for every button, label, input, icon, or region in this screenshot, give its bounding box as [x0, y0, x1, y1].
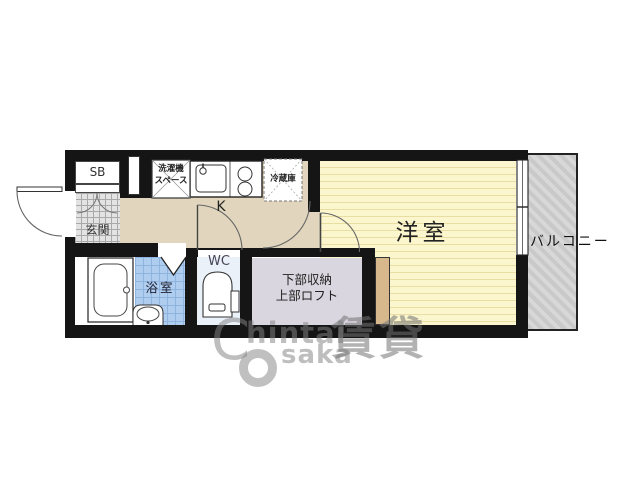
shoe-box-label: SB — [75, 165, 120, 179]
wall — [308, 150, 320, 212]
wall — [65, 243, 158, 257]
shoe-box-shelf — [75, 184, 120, 193]
pipe-space — [128, 156, 140, 195]
entrance-door-swing — [17, 187, 62, 236]
refrigerator-label: 冷蔵庫 — [264, 172, 302, 184]
wall — [65, 150, 75, 191]
washing-machine-label: 洗濯機 スペース — [150, 163, 192, 187]
bathroom-label: 浴室 — [138, 277, 182, 296]
bathroom-door-opening — [158, 243, 186, 257]
floorplan-canvas: SB 玄関 洗濯機 スペース 冷蔵庫 K 洋室 バルコニー 浴室 WC 下部収納… — [0, 0, 640, 480]
watermark-chintai-cjk: 賃貸 — [331, 316, 427, 361]
watermark-c: C — [211, 313, 250, 369]
entrance-label: 玄関 — [75, 221, 120, 238]
wall — [516, 255, 528, 338]
toilet-label: WC — [198, 254, 240, 269]
bathroom-unit-area — [75, 257, 137, 325]
balcony-label: バルコニー — [530, 231, 620, 251]
wall — [185, 250, 197, 338]
window-icon — [517, 160, 528, 255]
storage-loft-label: 下部収納 上部ロフト — [255, 272, 359, 304]
western-room-label: 洋室 — [375, 213, 470, 247]
kitchen-label: K — [209, 199, 233, 215]
